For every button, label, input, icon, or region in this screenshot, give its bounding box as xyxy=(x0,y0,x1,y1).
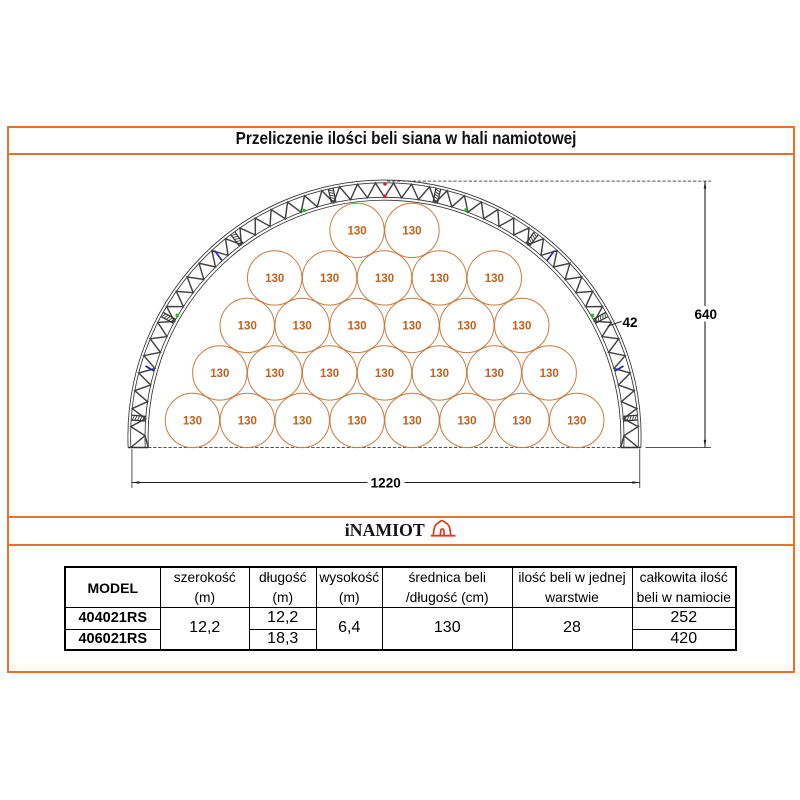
svg-text:130: 130 xyxy=(402,225,421,237)
svg-text:130: 130 xyxy=(265,273,284,285)
svg-text:130: 130 xyxy=(485,368,504,380)
svg-text:130: 130 xyxy=(320,273,339,285)
svg-text:130: 130 xyxy=(375,273,394,285)
svg-text:130: 130 xyxy=(430,368,449,380)
svg-text:130: 130 xyxy=(512,415,531,427)
svg-text:130: 130 xyxy=(402,415,421,427)
svg-text:130: 130 xyxy=(567,415,586,427)
svg-text:1220: 1220 xyxy=(371,475,401,490)
svg-text:130: 130 xyxy=(183,415,202,427)
svg-text:640: 640 xyxy=(695,306,718,321)
svg-text:130: 130 xyxy=(238,320,257,332)
svg-text:130: 130 xyxy=(348,415,367,427)
svg-text:130: 130 xyxy=(375,368,394,380)
svg-text:130: 130 xyxy=(512,320,531,332)
svg-text:130: 130 xyxy=(238,415,257,427)
svg-text:130: 130 xyxy=(457,320,476,332)
svg-text:130: 130 xyxy=(430,273,449,285)
svg-text:130: 130 xyxy=(347,320,366,332)
svg-text:130: 130 xyxy=(320,368,339,380)
svg-text:130: 130 xyxy=(210,368,229,380)
svg-text:130: 130 xyxy=(293,320,312,332)
svg-text:130: 130 xyxy=(485,273,504,285)
svg-text:130: 130 xyxy=(402,320,421,332)
svg-text:130: 130 xyxy=(457,415,476,427)
svg-text:130: 130 xyxy=(293,415,312,427)
svg-text:130: 130 xyxy=(540,368,559,380)
svg-text:130: 130 xyxy=(347,225,366,237)
svg-text:130: 130 xyxy=(265,368,284,380)
svg-text:42: 42 xyxy=(623,314,638,329)
